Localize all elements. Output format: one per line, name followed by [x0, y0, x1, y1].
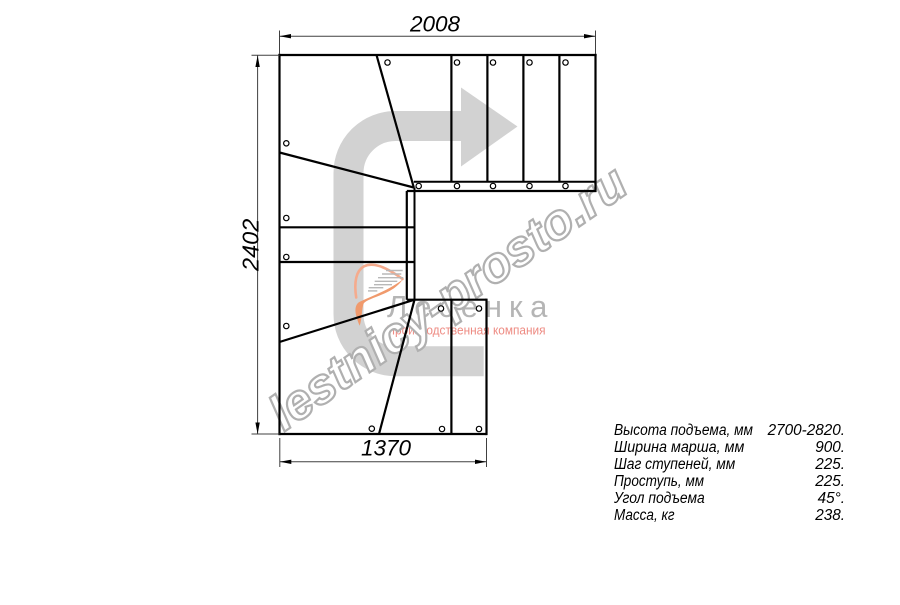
svg-text:2402: 2402 [238, 219, 264, 272]
svg-text:225.: 225. [814, 456, 845, 473]
svg-text:Высота подъема, мм: Высота подъема, мм [614, 422, 753, 439]
svg-text:Угол подъема: Угол подъема [613, 490, 705, 507]
svg-text:900.: 900. [815, 439, 845, 456]
svg-text:45°.: 45°. [818, 490, 845, 507]
svg-text:2008: 2008 [409, 12, 461, 37]
svg-text:2700-2820.: 2700-2820. [767, 422, 845, 439]
svg-text:Масса, кг: Масса, кг [614, 507, 675, 524]
svg-text:Проступь, мм: Проступь, мм [614, 473, 704, 490]
svg-text:Шаг ступеней, мм: Шаг ступеней, мм [614, 456, 736, 473]
svg-text:238.: 238. [814, 507, 845, 524]
svg-text:Ширина марша, мм: Ширина марша, мм [614, 439, 745, 456]
svg-text:1370: 1370 [361, 436, 412, 461]
svg-text:225.: 225. [814, 473, 845, 490]
